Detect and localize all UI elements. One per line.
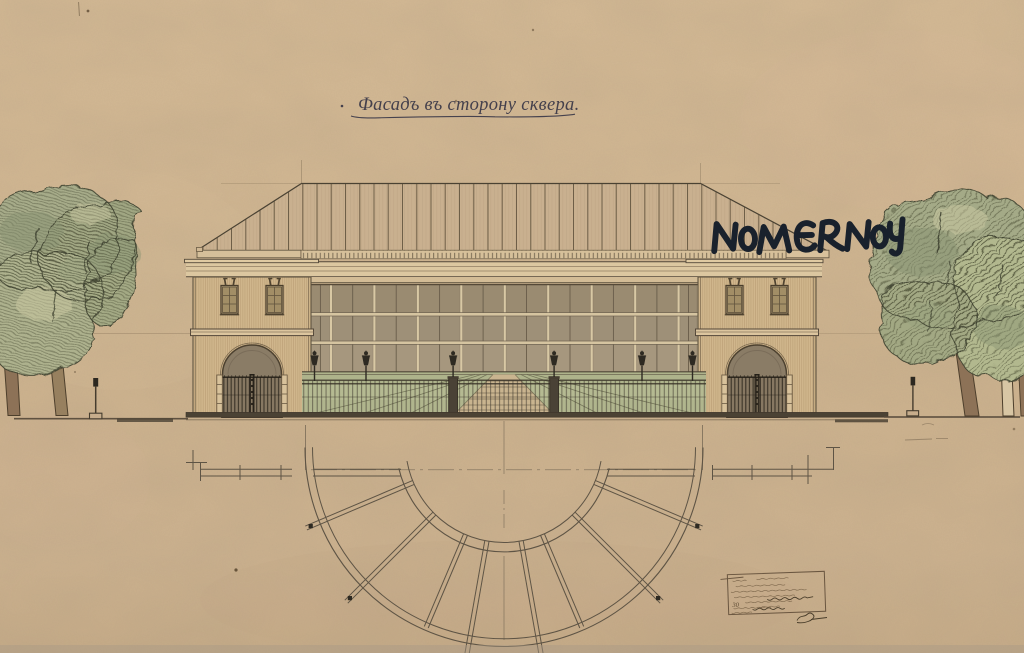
svg-text:Фасадъ въ сторону сквера.: Фасадъ въ сторону сквера. (358, 95, 580, 115)
svg-text:30: 30 (731, 602, 739, 609)
